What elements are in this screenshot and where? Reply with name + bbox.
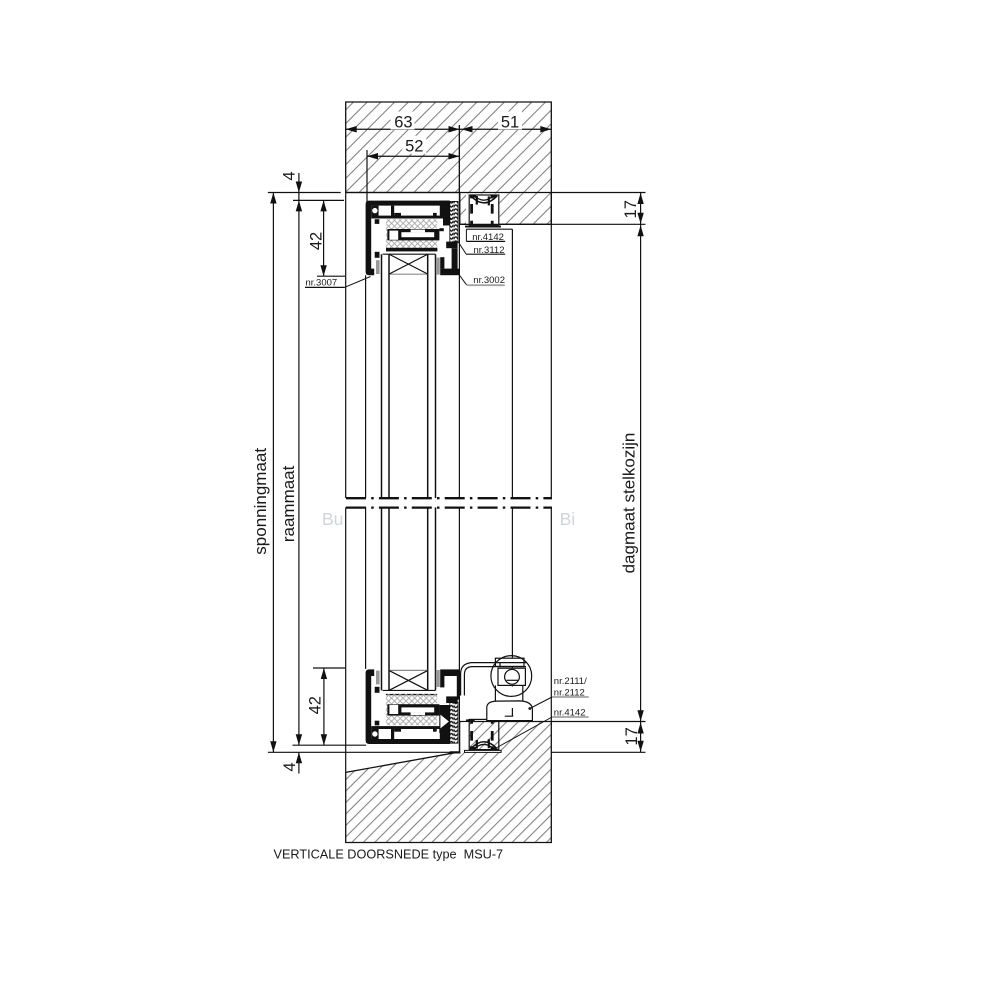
svg-text:4: 4 bbox=[281, 171, 299, 180]
svg-text:VERTICALE DOORSNEDE type MSU-: VERTICALE DOORSNEDE type MSU-7 bbox=[274, 847, 504, 861]
svg-text:nr.3112: nr.3112 bbox=[474, 245, 505, 256]
svg-text:nr.4142: nr.4142 bbox=[472, 232, 504, 243]
svg-text:4: 4 bbox=[281, 762, 299, 771]
svg-text:Bi: Bi bbox=[560, 509, 576, 529]
svg-text:42: 42 bbox=[307, 696, 325, 714]
svg-text:dagmaat stelkozijn: dagmaat stelkozijn bbox=[620, 433, 639, 574]
svg-text:nr.4142: nr.4142 bbox=[554, 708, 586, 719]
svg-text:52: 52 bbox=[405, 137, 423, 155]
svg-text:nr.3002: nr.3002 bbox=[473, 275, 505, 286]
svg-text:17: 17 bbox=[622, 200, 640, 218]
svg-text:51: 51 bbox=[501, 114, 519, 132]
svg-text:nr.2111/: nr.2111/ bbox=[554, 676, 587, 687]
svg-text:17: 17 bbox=[623, 727, 641, 745]
svg-text:raammaat: raammaat bbox=[279, 465, 298, 542]
svg-text:nr.3007: nr.3007 bbox=[306, 278, 338, 289]
svg-text:42: 42 bbox=[307, 232, 325, 250]
svg-text:63: 63 bbox=[394, 114, 412, 132]
svg-text:Bu: Bu bbox=[322, 509, 343, 529]
svg-text:nr.2112: nr.2112 bbox=[554, 688, 585, 699]
svg-text:sponningmaat: sponningmaat bbox=[251, 448, 270, 555]
